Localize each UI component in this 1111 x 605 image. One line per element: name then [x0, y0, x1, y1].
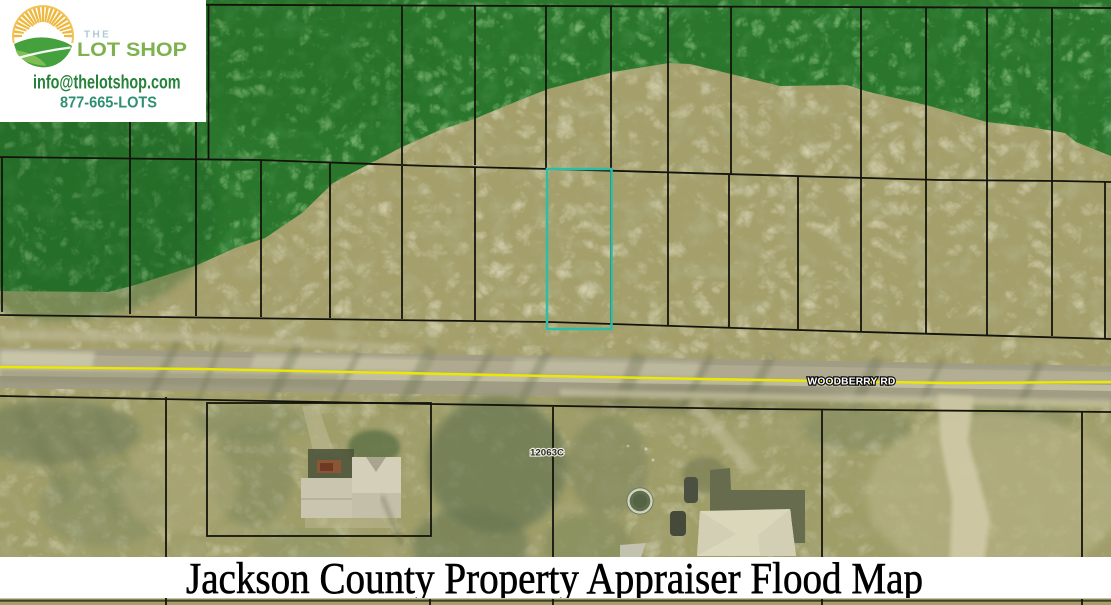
svg-text:WOODBERRY RD: WOODBERRY RD — [808, 376, 896, 388]
svg-text:Jackson County Property Apprai: Jackson County Property Appraiser Flood … — [186, 554, 923, 603]
svg-text:LOT SHOP: LOT SHOP — [77, 39, 187, 61]
svg-text:12063C: 12063C — [530, 448, 564, 459]
svg-text:info@thelotshop.com: info@thelotshop.com — [33, 73, 181, 94]
svg-text:877-665-LOTS: 877-665-LOTS — [60, 95, 157, 112]
